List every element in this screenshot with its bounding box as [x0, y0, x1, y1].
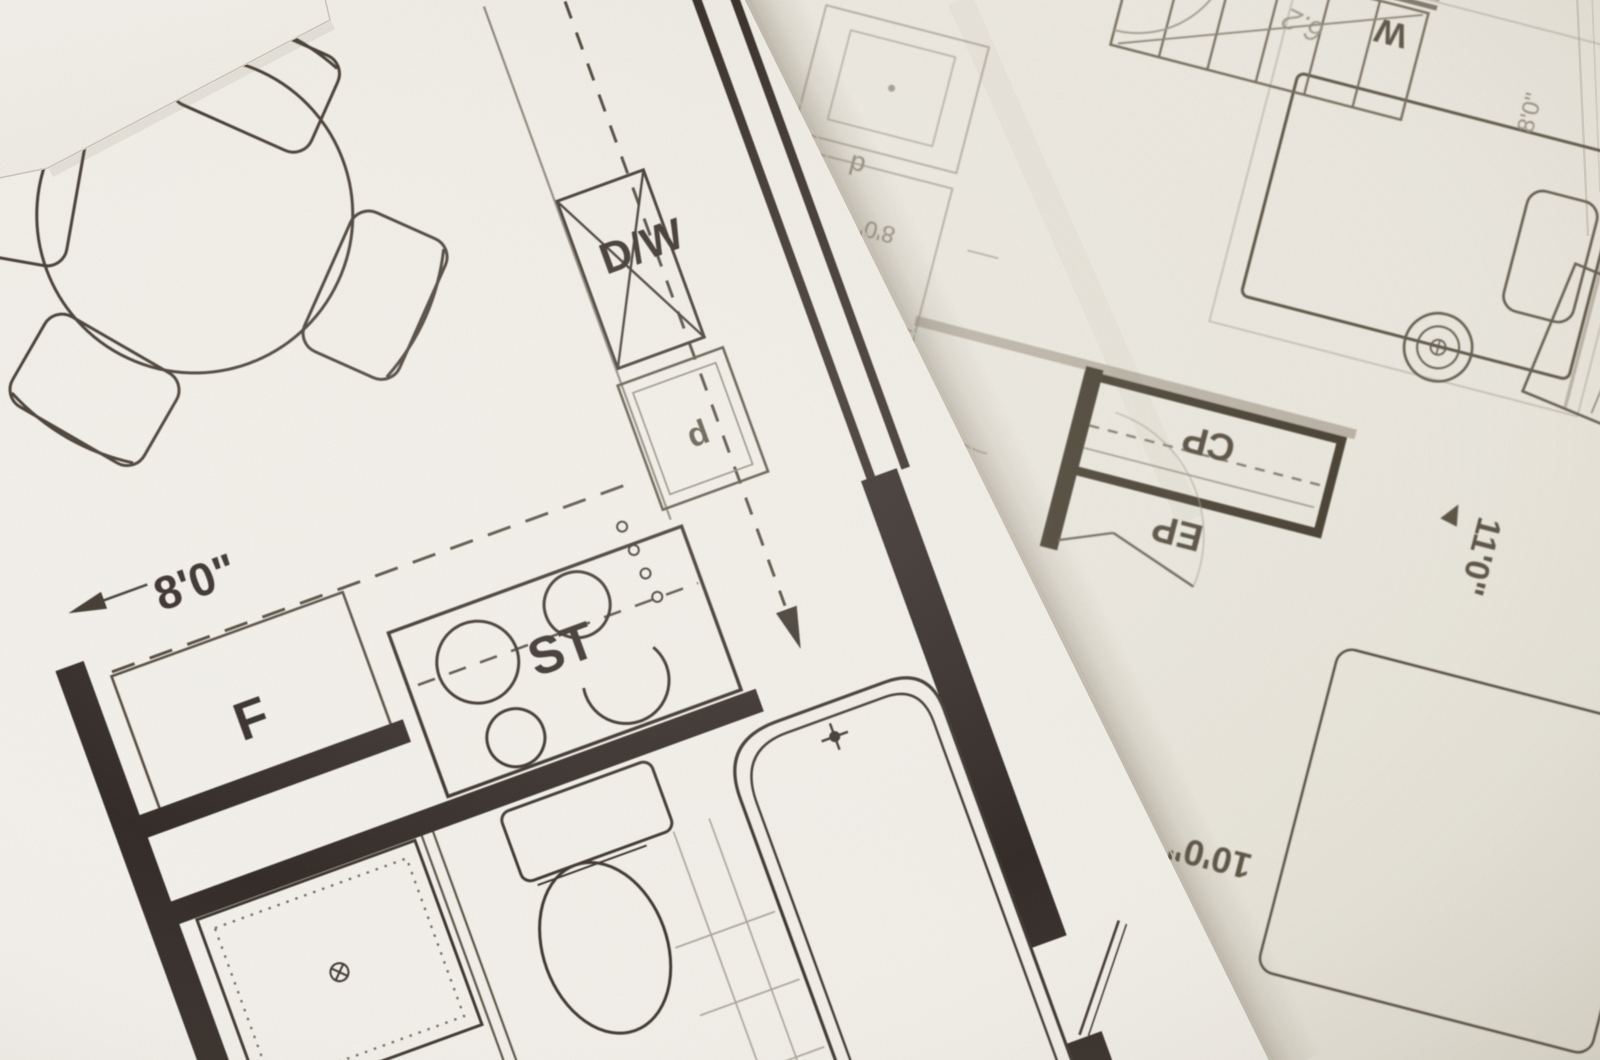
film-grain-overlay [0, 0, 1600, 1060]
blueprint-photo: CP EP W 6.2 11'0" 1 [0, 0, 1600, 1060]
blueprint-photo-scene: CP EP W 6.2 11'0" 1 [0, 0, 1600, 1060]
